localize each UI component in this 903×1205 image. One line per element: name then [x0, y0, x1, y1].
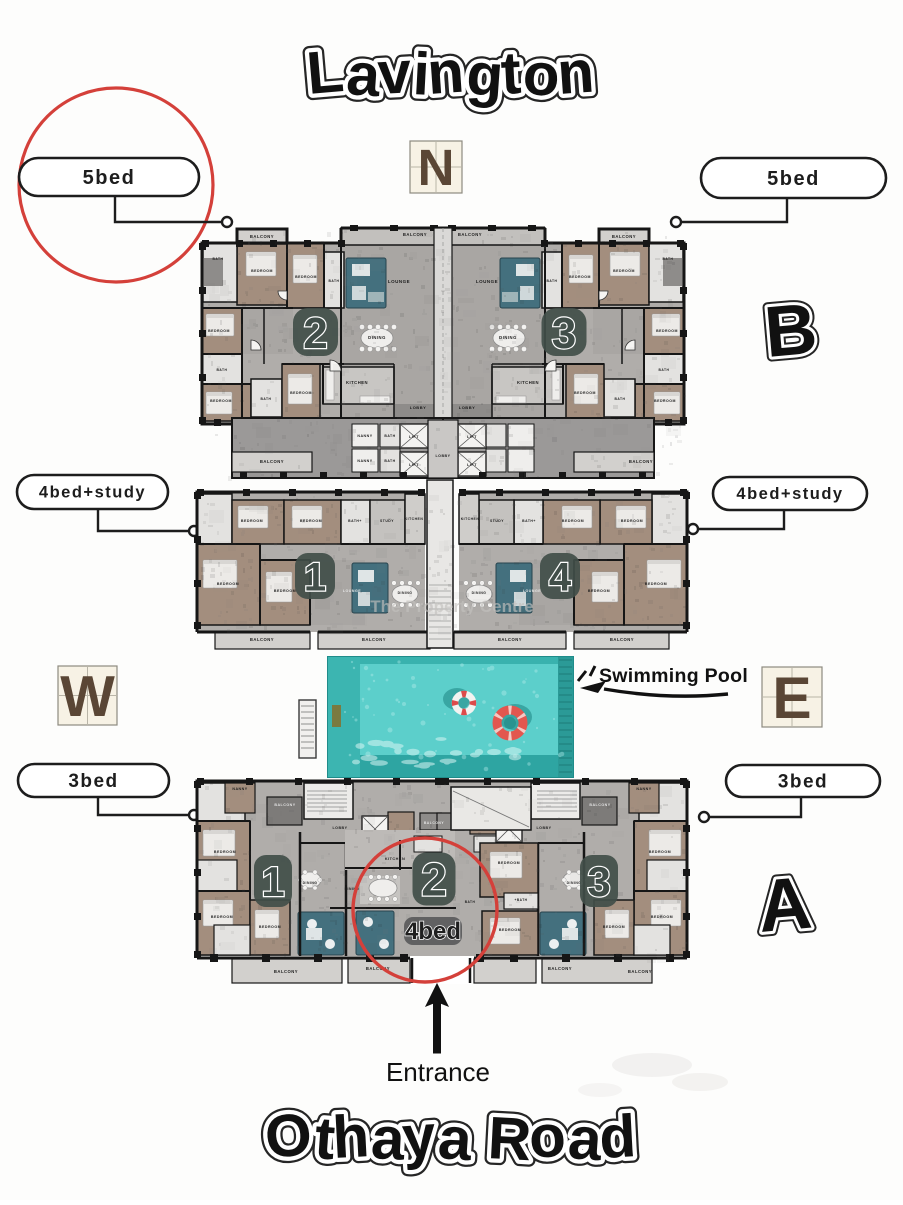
svg-text:BEDROOM: BEDROOM — [656, 329, 678, 333]
svg-text:BATH: BATH — [329, 279, 340, 283]
svg-text:KITCHEN: KITCHEN — [346, 380, 368, 385]
svg-text:BALCONY: BALCONY — [629, 459, 653, 464]
svg-text:LIFT: LIFT — [409, 435, 419, 439]
svg-text:3bed: 3bed — [68, 771, 118, 792]
svg-text:BEDROOM: BEDROOM — [300, 519, 322, 523]
svg-text:BEDROOM: BEDROOM — [569, 275, 591, 279]
svg-text:BALCONY: BALCONY — [589, 803, 610, 807]
svg-text:LOBBY: LOBBY — [459, 405, 476, 410]
svg-text:BALCONY: BALCONY — [458, 232, 482, 237]
svg-text:BEDROOM: BEDROOM — [251, 269, 273, 273]
svg-text:BEDROOM: BEDROOM — [651, 915, 673, 919]
svg-text:E: E — [772, 666, 811, 731]
svg-text:BEDROOM: BEDROOM — [295, 275, 317, 279]
svg-text:N: N — [418, 139, 455, 196]
svg-text:LOBBY: LOBBY — [435, 454, 450, 458]
svg-text:LOUNGE: LOUNGE — [523, 589, 541, 593]
svg-text:2: 2 — [421, 854, 447, 906]
svg-text:BEDROOM: BEDROOM — [649, 850, 671, 854]
svg-text:BEDROOM: BEDROOM — [217, 582, 239, 586]
svg-text:Swimming Pool: Swimming Pool — [599, 665, 748, 687]
svg-text:BEDROOM: BEDROOM — [208, 329, 230, 333]
svg-text:BEDROOM: BEDROOM — [499, 928, 521, 932]
svg-text:BALCONY: BALCONY — [274, 969, 298, 974]
svg-text:1: 1 — [261, 858, 284, 905]
svg-text:BALCONY: BALCONY — [498, 637, 522, 642]
svg-text:BALCONY: BALCONY — [260, 459, 284, 464]
svg-text:1: 1 — [304, 555, 326, 599]
svg-text:BATH: BATH — [615, 397, 626, 401]
svg-text:BEDROOM: BEDROOM — [259, 925, 281, 929]
svg-text:BEDROOM: BEDROOM — [214, 850, 236, 854]
svg-text:BATH: BATH — [465, 900, 476, 904]
svg-text:The Property Centre: The Property Centre — [370, 597, 533, 616]
svg-text:5bed: 5bed — [767, 168, 820, 190]
svg-text:3bed: 3bed — [778, 771, 828, 792]
svg-text:BATH: BATH — [261, 397, 272, 401]
svg-text:DINING: DINING — [303, 881, 318, 885]
svg-text:2: 2 — [303, 309, 327, 358]
svg-text:BEDROOM: BEDROOM — [562, 519, 584, 523]
svg-text:BATH+: BATH+ — [348, 519, 362, 523]
svg-text:BEDROOM: BEDROOM — [241, 519, 263, 523]
svg-text:DINING: DINING — [398, 591, 413, 595]
svg-text:4bed+study: 4bed+study — [736, 485, 843, 503]
svg-text:DINING: DINING — [472, 591, 487, 595]
svg-text:4: 4 — [549, 555, 572, 599]
svg-text:BALCONY: BALCONY — [424, 821, 445, 825]
svg-text:BEDROOM: BEDROOM — [211, 915, 233, 919]
svg-text:NANNY: NANNY — [232, 787, 247, 791]
svg-text:KITCHEN: KITCHEN — [461, 517, 480, 521]
svg-text:DINING: DINING — [368, 335, 386, 340]
svg-text:LOUNGE: LOUNGE — [388, 279, 410, 284]
svg-text:LIFT: LIFT — [409, 463, 419, 467]
svg-text:KITCHEN: KITCHEN — [405, 517, 424, 521]
svg-text:BATH: BATH — [659, 368, 670, 372]
svg-text:BEDROOM: BEDROOM — [498, 861, 520, 865]
svg-text:BATH: BATH — [213, 257, 224, 261]
svg-text:KITCHEN: KITCHEN — [517, 380, 539, 385]
svg-text:A: A — [754, 861, 814, 948]
svg-text:BATH: BATH — [547, 279, 558, 283]
svg-text:BATH: BATH — [217, 368, 228, 372]
svg-text:LIFT: LIFT — [467, 463, 477, 467]
svg-text:BALCONY: BALCONY — [250, 637, 274, 642]
svg-text:BEDROOM: BEDROOM — [274, 589, 296, 593]
svg-text:BATH: BATH — [384, 434, 395, 438]
svg-text:LOUNGE: LOUNGE — [343, 589, 361, 593]
svg-text:5bed: 5bed — [83, 167, 136, 189]
svg-text:BEDROOM: BEDROOM — [621, 519, 643, 523]
svg-text:BEDROOM: BEDROOM — [210, 399, 232, 403]
svg-text:B: B — [761, 289, 820, 373]
svg-text:DINING: DINING — [499, 335, 517, 340]
svg-text:Othaya Road: Othaya Road — [262, 1100, 637, 1173]
svg-text:BALCONY: BALCONY — [628, 969, 652, 974]
svg-text:BEDROOM: BEDROOM — [613, 269, 635, 273]
svg-text:LOUNGE: LOUNGE — [476, 279, 498, 284]
svg-text:BALCONY: BALCONY — [274, 803, 295, 807]
svg-text:KITCHEN: KITCHEN — [385, 857, 405, 861]
svg-text:STUDY: STUDY — [380, 519, 394, 523]
svg-text:BALCONY: BALCONY — [403, 232, 427, 237]
svg-text:NANNY: NANNY — [636, 787, 651, 791]
svg-text:LIFT: LIFT — [467, 435, 477, 439]
svg-text:BEDROOM: BEDROOM — [654, 399, 676, 403]
svg-text:BATH: BATH — [663, 257, 674, 261]
svg-text:STUDY: STUDY — [490, 519, 504, 523]
svg-text:3: 3 — [552, 309, 576, 358]
svg-text:BATH: BATH — [384, 459, 395, 463]
svg-text:BATH+: BATH+ — [522, 519, 536, 523]
svg-text:BEDROOM: BEDROOM — [290, 391, 312, 395]
svg-text:BALCONY: BALCONY — [362, 637, 386, 642]
svg-text:BALCONY: BALCONY — [250, 234, 274, 239]
svg-text:BEDROOM: BEDROOM — [645, 582, 667, 586]
svg-text:+BATH: +BATH — [515, 898, 528, 902]
svg-text:LOBBY: LOBBY — [536, 826, 551, 830]
svg-text:BEDROOM: BEDROOM — [588, 589, 610, 593]
svg-text:4bed+study: 4bed+study — [39, 484, 146, 502]
svg-text:BALCONY: BALCONY — [612, 234, 636, 239]
svg-text:W: W — [60, 665, 115, 729]
svg-text:LOBBY: LOBBY — [410, 405, 427, 410]
svg-text:BALCONY: BALCONY — [548, 966, 572, 971]
svg-text:4bed: 4bed — [405, 918, 461, 945]
svg-text:DINING: DINING — [567, 881, 582, 885]
svg-text:NANNY: NANNY — [357, 459, 372, 463]
svg-text:LOBBY: LOBBY — [332, 826, 347, 830]
svg-text:BEDROOM: BEDROOM — [574, 391, 596, 395]
svg-text:3: 3 — [587, 858, 610, 905]
svg-text:BALCONY: BALCONY — [610, 637, 634, 642]
svg-text:BEDROOM: BEDROOM — [603, 925, 625, 929]
svg-text:Entrance: Entrance — [386, 1057, 490, 1087]
svg-text:NANNY: NANNY — [357, 434, 372, 438]
